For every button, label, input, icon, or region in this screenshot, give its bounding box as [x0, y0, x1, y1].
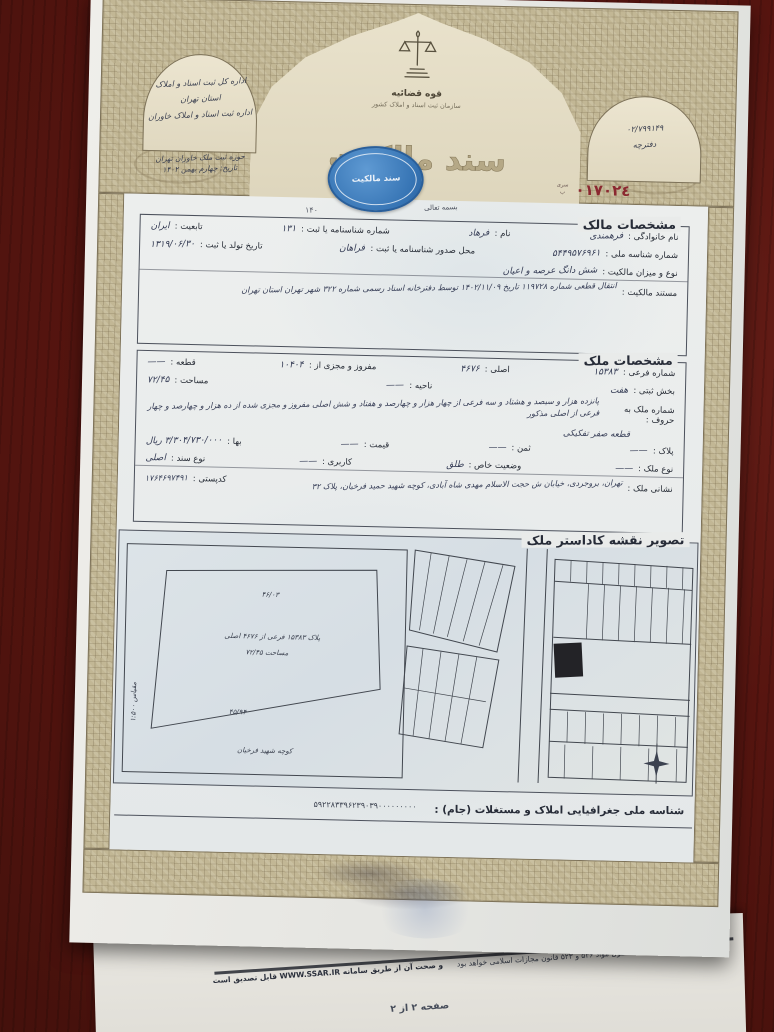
field-nationality: تابعیت : ایران [150, 221, 202, 232]
field-value: فراهان [340, 243, 366, 253]
field-label: شماره ملک به حروف : [604, 404, 675, 426]
field-value: —— [147, 357, 165, 367]
field-value: —— [386, 381, 404, 391]
form-number-note: ۱۴۰ [305, 206, 318, 215]
owner-section-title: مشخصات مالک [577, 217, 680, 232]
field-label: قطعه : [170, 358, 195, 369]
owner-section: مشخصات مالک نام خانوادگی : فرهمندی نام :… [137, 214, 690, 356]
field-price: قیمت : —— [341, 439, 390, 450]
field-firstname: نام : فرهاد [469, 228, 511, 239]
deed-document: قوه قضائیه سازمان ثبت اسناد و املاک کشور… [69, 0, 750, 957]
field-zone: ناحیه : —— [386, 380, 432, 391]
field-label: کاربری : [322, 457, 352, 468]
field-label: کدپستی : [193, 474, 227, 485]
field-label: شماره شناسه ملی : [605, 249, 678, 261]
left-arch-line3: اداره ثبت اسناد و املاک خاوران [144, 107, 256, 124]
geo-id-value: ۵۹۲۲۸۳۳۹۶۲۳۹۰۳۹۰۰۰۰۰۰۰۰۰ [313, 800, 416, 811]
field-value: فرهمندی [589, 231, 623, 241]
ornament-header-band: قوه قضائیه سازمان ثبت اسناد و املاک کشور… [98, 0, 738, 207]
left-arch-line5: تاریخ: چهارم بهمن ۱۴۰۲ [130, 161, 270, 176]
property-section-title: مشخصات ملک [579, 353, 678, 368]
field-birth-date: تاریخ تولد یا ثبت : ۱۳۱۹/۰۶/۳۰ [150, 239, 263, 252]
field-plate: پلاک : —— [630, 446, 674, 457]
field-property-type: نوع ملک : —— [615, 464, 673, 475]
field-label: ناحیه : [409, 381, 432, 392]
field-id-issue-place: محل صدور شناسنامه یا ثبت : فراهان [339, 243, 475, 256]
field-value: ۴۶۷۶ [460, 364, 479, 374]
field-value: ۱۵۳۸۳ [594, 367, 618, 377]
field-national-id: شماره شناسه ملی : ۵۴۴۹۵۷۶۹۶۱ [552, 248, 678, 261]
field-value: تهران، بروجردی، خیابان ش حجت الاسلام مهد… [312, 477, 623, 493]
field-label: مساحت : [174, 376, 208, 387]
field-label: شماره شناسنامه یا ثبت : [301, 224, 390, 236]
field-eighth-share: ثمن : —— [488, 443, 531, 454]
field-label: تاریخ تولد یا ثبت : [200, 240, 263, 251]
field-land-use: کاربری : —— [299, 456, 352, 467]
left-arch-line1: اداره کل ثبت اسناد و املاک [145, 75, 257, 92]
field-value: ۱۳۱۹/۰۶/۳۰ [150, 239, 195, 250]
field-lastname: نام خانوادگی : فرهمندی [589, 231, 678, 243]
field-label: پلاک : [653, 447, 674, 457]
justice-scales-icon [395, 29, 440, 84]
field-special-status: وضعیت خاص : طلق [446, 460, 522, 472]
field-value: ۱۳۱ [282, 224, 297, 234]
field-label: بخش ثبتی : [633, 386, 675, 397]
parcel-bottom-dimension: ۴۵/۹۴ [229, 708, 248, 716]
field-label: نام خانوادگی : [628, 232, 679, 243]
field-value: هفت [610, 386, 628, 396]
parcel-plan: ۴۶/۰۳ پلاک ۱۵۳۸۳ فرعی از ۴۶۷۶ اصلی مساحت… [122, 544, 407, 778]
field-value: —— [299, 457, 317, 467]
serial-number: ٠١٧٠٢٤ [575, 181, 630, 200]
field-ownership-deed-basis: مستند مالکیت : انتقال قطعی شماره ۱۱۹۷۲۸ … [241, 278, 677, 300]
field-value: ایران [151, 221, 170, 231]
field-registry-district: بخش ثبتی : هفت [610, 386, 675, 397]
field-value: انتقال قطعی شماره ۱۱۹۷۲۸ تاریخ ۱۴۰۲/۱۱/۰… [241, 280, 617, 297]
field-label: شماره فرعی : [623, 368, 676, 379]
field-value: پانزده هزار و سیصد و هشتاد و سه فرعی از … [146, 395, 599, 425]
field-label: نوع و میزان مالکیت : [602, 267, 678, 279]
compass-rose-icon [643, 743, 670, 784]
page-number: صفحه ۲ از ۲ [390, 1000, 449, 1015]
property-section: مشخصات ملک شماره فرعی : ۱۵۳۸۳ اصلی : ۴۶۷… [133, 350, 687, 534]
field-address: نشانی ملک : تهران، بروجردی، خیابان ش حجت… [312, 476, 673, 496]
field-label: نام : [494, 229, 510, 239]
parcel-area-label: مساحت ۷۲/۴۵ [245, 648, 288, 657]
field-label: قیمت : [364, 440, 390, 451]
parcel-plate-label: پلاک ۱۵۳۸۳ فرعی از ۴۶۷۶ اصلی [224, 632, 320, 642]
field-value: ۷۲/۴۵ [147, 375, 169, 385]
field-value: اصلی [145, 453, 166, 463]
field-label: نوع ملک : [638, 464, 673, 475]
field-value: —— [615, 464, 633, 474]
field-postal-code: کدپستی : ۱۷۶۴۶۹۷۴۹۱ [145, 472, 227, 486]
left-arch-line2: استان تهران [144, 91, 256, 108]
cadastral-section: تصویر نقشه کاداستر ملک ۴۶/۰۳ پلاک ۱۵۳۸۳ … [113, 529, 699, 796]
field-label: محل صدور شناسنامه یا ثبت : [370, 244, 475, 256]
parcel-scale-note: مقیاس ۱:۵۰۰ [129, 682, 138, 722]
right-arch-panel: ۰۲/۷۹۹۱۴۹ دفترچه [587, 95, 703, 184]
parcel-street-label: کوچه شهید فرخیان [237, 746, 294, 755]
field-value-rials: بها : ۳/۳۰۴/۷۳۰/۰۰۰ ریال [146, 435, 242, 447]
parcel-top-dimension: ۴۶/۰۳ [261, 591, 280, 599]
field-value: —— [341, 440, 359, 450]
field-area: مساحت : ۷۲/۴۵ [147, 375, 208, 386]
serial-caption: سری ب [554, 183, 570, 197]
bismillah-note: بسمه تعالی [424, 203, 458, 212]
left-arch-panel: اداره کل ثبت اسناد و املاک استان تهران ا… [142, 53, 258, 154]
geo-id-label: شناسه ملی جغرافیایی املاک و مستغلات (جام… [435, 803, 685, 816]
serial-number-group: سری ب ٠١٧٠٢٤ [554, 180, 630, 200]
field-value: شش دانگ عرصه و اعیان [503, 266, 598, 277]
booklet-caption: دفترچه [588, 137, 700, 154]
field-label: بها : [227, 437, 242, 447]
field-parcel-in-words: شماره ملک به حروف : پانزده هزار و سیصد و… [146, 393, 674, 429]
field-value: ۱۰۴۰۴ [280, 360, 304, 370]
field-label: ثمن : [511, 443, 531, 453]
field-separated-from: مفروز و مجزی از : ۱۰۴۰۴ [280, 360, 377, 372]
field-label: اصلی : [485, 365, 510, 376]
field-sub-parcel: شماره فرعی : ۱۵۳۸۳ [594, 367, 676, 379]
field-main-parcel: اصلی : ۴۶۷۶ [460, 364, 510, 375]
field-label: مستند مالکیت : [622, 288, 678, 299]
photo-scene: هر گونه نقل از اسناد رسمی مشمول مواد ۵۳۶… [0, 0, 774, 1032]
field-label: نوع سند : [171, 454, 205, 465]
field-value: ۵۴۴۹۵۷۶۹۶۱ [552, 248, 600, 259]
field-piece: قطعه : —— [147, 357, 195, 368]
field-label: وضعیت خاص : [468, 460, 521, 471]
field-value: طلق [446, 460, 464, 470]
field-value: ۱۷۶۴۶۹۷۴۹۱ [145, 472, 188, 485]
block-map [398, 546, 693, 787]
field-label: مفروز و مجزی از : [309, 361, 377, 373]
field-label: نشانی ملک : [627, 484, 672, 495]
left-arch-subtext: حوزه ثبت ملک خاوران تهران تاریخ: چهارم ب… [130, 151, 270, 177]
field-value: فرهاد [469, 228, 490, 238]
field-label: تابعیت : [175, 222, 203, 233]
cadastral-map: ۴۶/۰۳ پلاک ۱۵۳۸۳ فرعی از ۴۶۷۶ اصلی مساحت… [114, 530, 698, 795]
field-value: —— [630, 446, 648, 456]
field-value: —— [488, 443, 506, 453]
field-value: ۳/۳۰۴/۷۳۰/۰۰۰ ریال [146, 435, 223, 446]
subject-parcel-highlight [554, 643, 583, 677]
booklet-number: ۰۲/۷۹۹۱۴۹ [589, 121, 701, 138]
field-id-number: شماره شناسنامه یا ثبت : ۱۳۱ [281, 224, 389, 236]
deed-content: بسمه تعالی ۱۴۰ مشخصات مالک نام خانوادگی … [109, 193, 708, 862]
field-deed-type: نوع سند : اصلی [145, 453, 205, 464]
seal-text: سند مالکیت [351, 173, 400, 184]
